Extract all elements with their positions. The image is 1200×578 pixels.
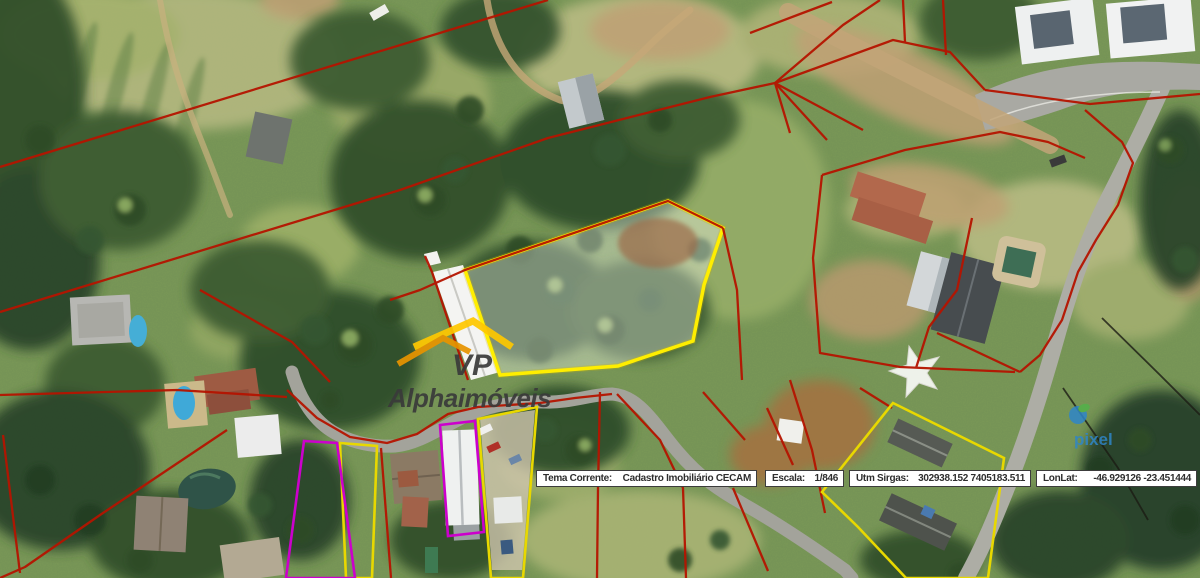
status-value: Cadastro Imobiliário CECAM: [623, 473, 751, 484]
car: [500, 540, 513, 555]
vp-logo-name: Alphaimóveis: [387, 383, 551, 413]
status-label: Tema Corrente:: [543, 473, 612, 484]
status-label: Escala:: [772, 473, 805, 484]
solar-panels: [1030, 10, 1074, 49]
status-field-utm-sirgas: Utm Sirgas: 302938.152 7405183.511: [849, 470, 1031, 487]
house-roof: [234, 414, 281, 458]
aerial-map-canvas[interactable]: pixel VP Alphaimóveis: [0, 0, 1200, 578]
status-label: Utm Sirgas:: [856, 473, 909, 484]
status-label: LonLat:: [1043, 473, 1078, 484]
vp-logo-initials: VP: [452, 349, 493, 382]
status-value: 302938.152 7405183.511: [918, 473, 1025, 484]
status-value: -46.929126 -23.451444: [1093, 473, 1191, 484]
status-value: 1/846: [814, 473, 838, 484]
status-field-escala: Escala: 1/846: [765, 470, 844, 487]
swimming-pool: [129, 315, 147, 347]
status-field-lonlat: LonLat: -46.929126 -23.451444: [1036, 470, 1197, 487]
status-field-tema-corrente: Tema Corrente: Cadastro Imobiliário CECA…: [536, 470, 757, 487]
pixel-logo-text: pixel: [1074, 430, 1113, 449]
house-roof: [401, 496, 429, 527]
solar-panels: [1120, 4, 1167, 44]
map-viewport: pixel VP Alphaimóveis Tema Corrente: Cad…: [0, 0, 1200, 578]
house-roof: [493, 496, 522, 523]
green-shed-roof: [425, 547, 438, 573]
